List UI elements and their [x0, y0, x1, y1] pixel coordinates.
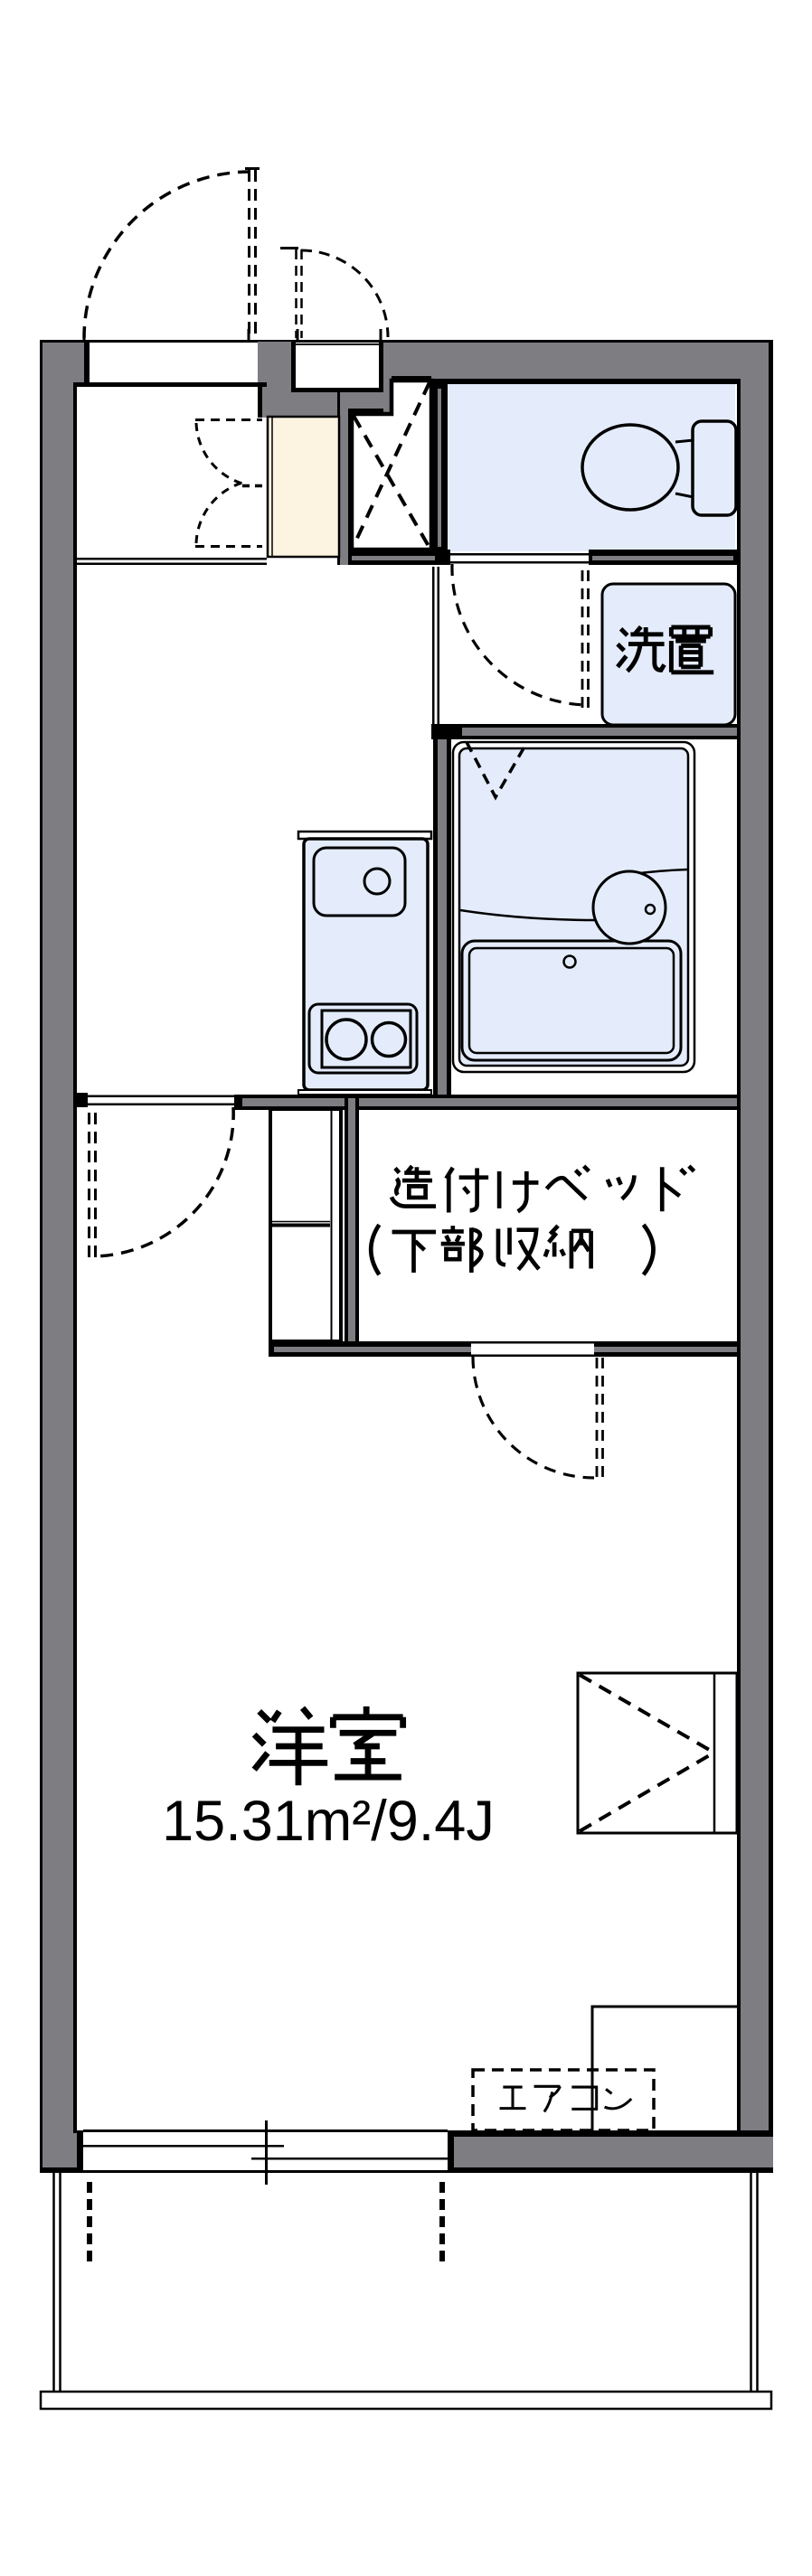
svg-text:15.31m²/9.4J: 15.31m²/9.4J — [162, 1790, 495, 1853]
